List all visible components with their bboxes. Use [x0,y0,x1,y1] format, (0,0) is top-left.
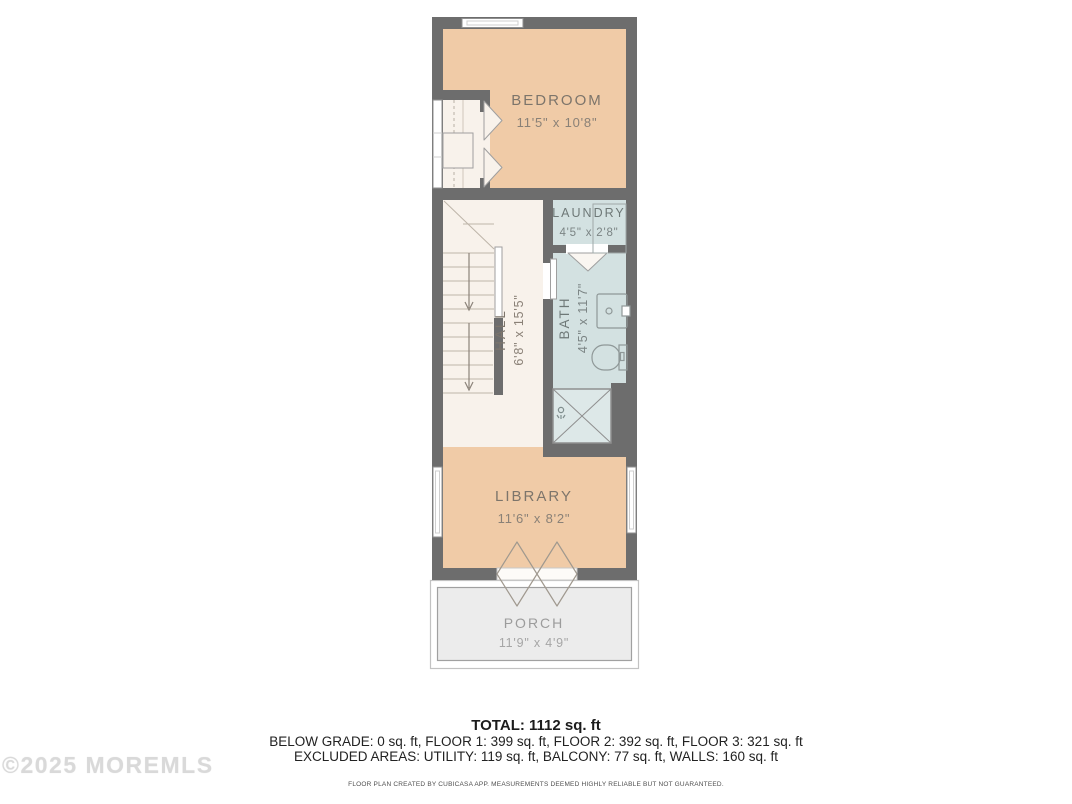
cubicasa-disclaimer: FLOOR PLAN CREATED BY CUBICASA APP. MEAS… [0,781,1072,788]
wall-bath-bottom [543,443,637,457]
closet-shelf [443,133,473,168]
total-area-text: TOTAL: 1112 sq. ft [0,717,1072,734]
bedroom-label: BEDROOM [511,92,603,109]
closet-left-window [433,100,442,188]
bedroom-top-window [462,19,523,28]
hall-dims: 6'8" x 15'5" [512,294,526,365]
porch-label: PORCH [504,615,565,631]
floor-plan-page: BEDROOM 11'5" x 10'8" LAUNDRY 4'5" x 2'8… [0,0,1072,804]
library-dims: 11'6" x 8'2" [498,511,571,526]
library-right-window [627,467,636,533]
stair-railing [495,247,502,317]
bedroom-dims: 11'5" x 10'8" [517,115,598,130]
shower [553,389,611,443]
library-left-window [433,467,442,537]
bath-label: BATH [557,296,572,339]
bath-dims: 4'5" x 11'7" [576,283,590,353]
bath-door-leaf [551,259,557,299]
floor-areas-text: BELOW GRADE: 0 sq. ft, FLOOR 1: 399 sq. … [0,734,1072,749]
porch-dims: 11'9" x 4'9" [499,636,569,650]
library-area [443,447,626,568]
laundry-label: LAUNDRY [552,206,626,220]
mls-watermark: ©2025 MOREMLS [2,752,214,779]
library-label: LIBRARY [495,488,573,505]
wall-shower-side [611,383,626,443]
wall-bedroom-bottom [432,188,637,200]
laundry-dims: 4'5" x 2'8" [559,227,618,239]
hall-label: HALL [493,309,508,351]
wall-hall-bath [543,200,553,443]
floor-plan-drawing: BEDROOM 11'5" x 10'8" LAUNDRY 4'5" x 2'8… [0,0,1072,804]
